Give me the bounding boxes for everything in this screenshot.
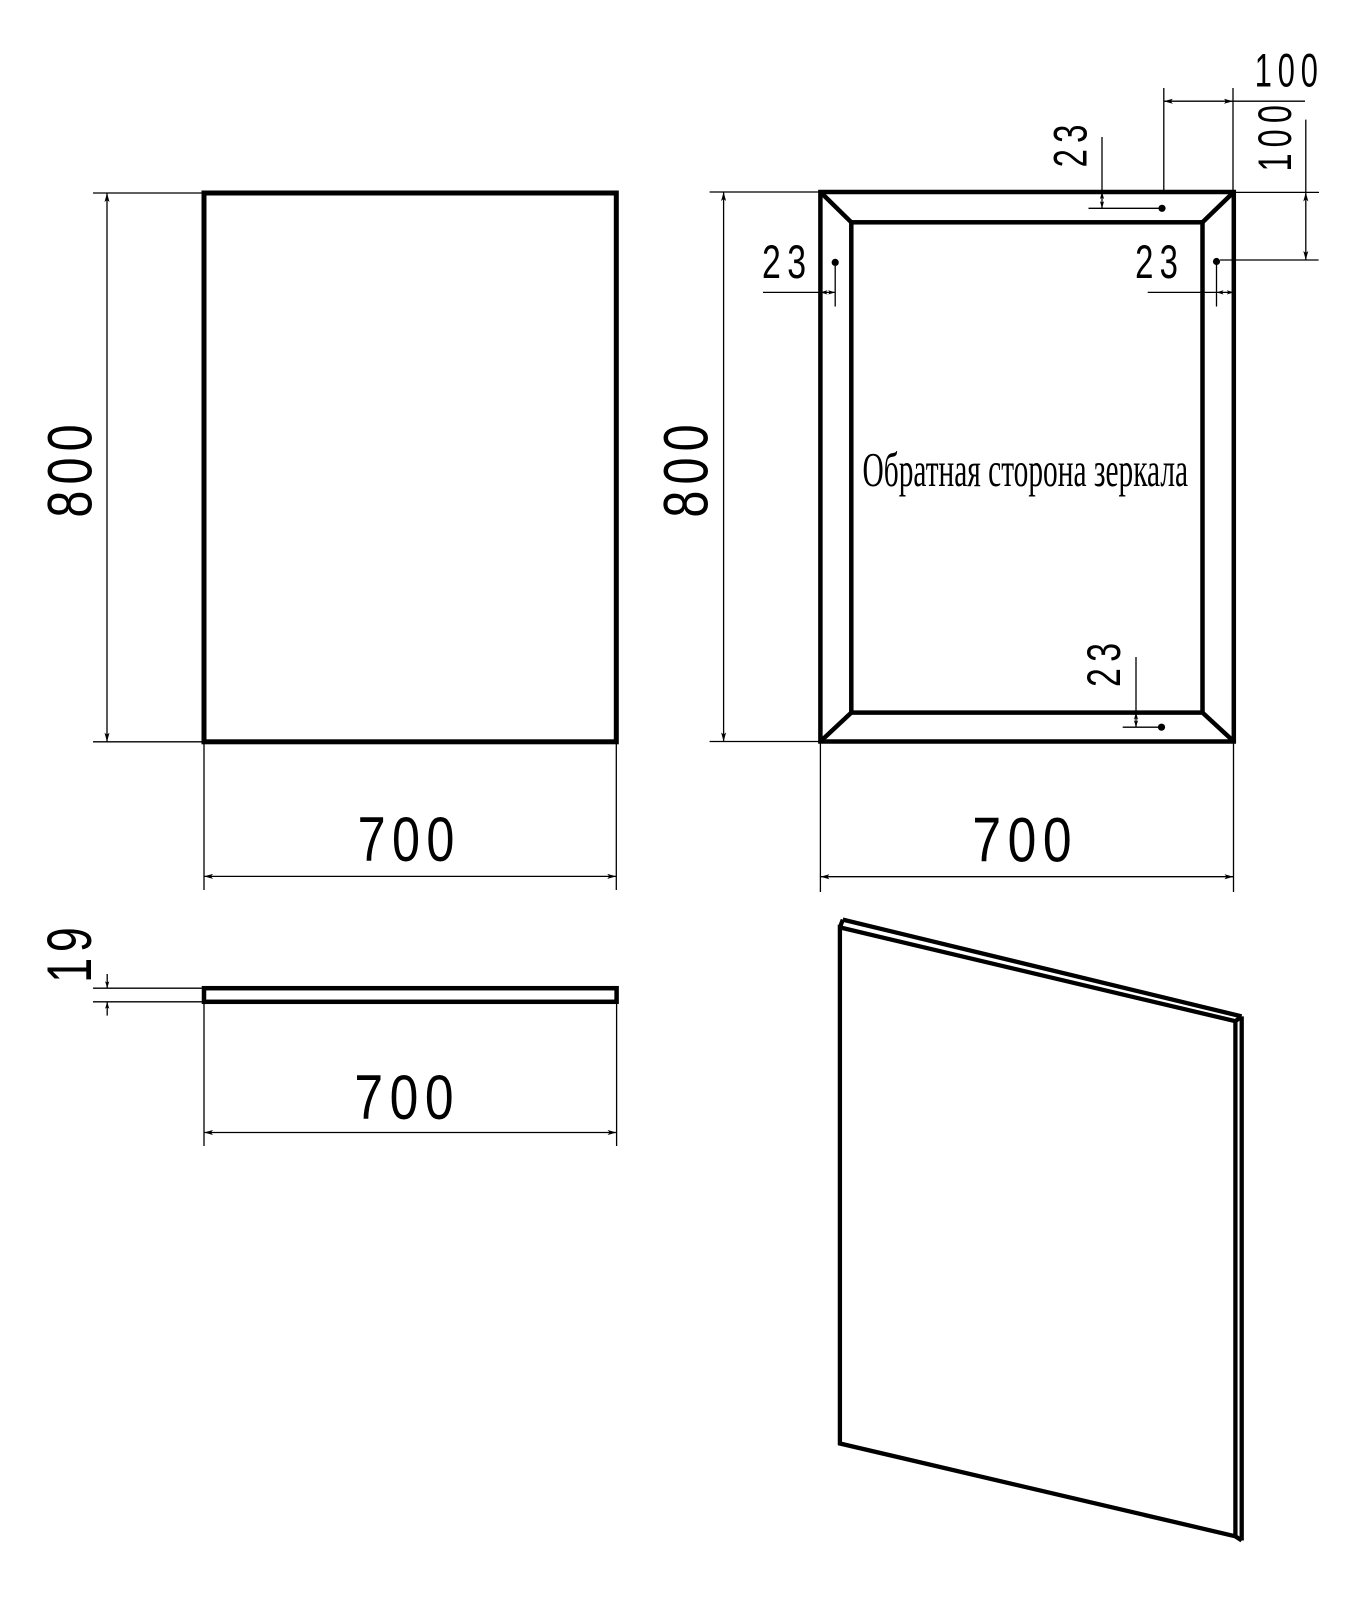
svg-text:23: 23 — [1135, 235, 1184, 288]
svg-text:100: 100 — [1255, 45, 1324, 97]
svg-text:700: 700 — [972, 806, 1078, 876]
svg-text:23: 23 — [1044, 118, 1097, 167]
svg-text:700: 700 — [354, 1063, 460, 1133]
svg-text:800: 800 — [34, 418, 105, 517]
svg-text:800: 800 — [650, 418, 721, 517]
svg-text:23: 23 — [762, 235, 813, 288]
svg-text:23: 23 — [1078, 636, 1131, 687]
svg-text:700: 700 — [358, 805, 461, 876]
svg-text:Обратная сторона зеркала: Обратная сторона зеркала — [863, 442, 1189, 497]
svg-text:100: 100 — [1248, 99, 1302, 172]
svg-text:19: 19 — [34, 922, 104, 983]
